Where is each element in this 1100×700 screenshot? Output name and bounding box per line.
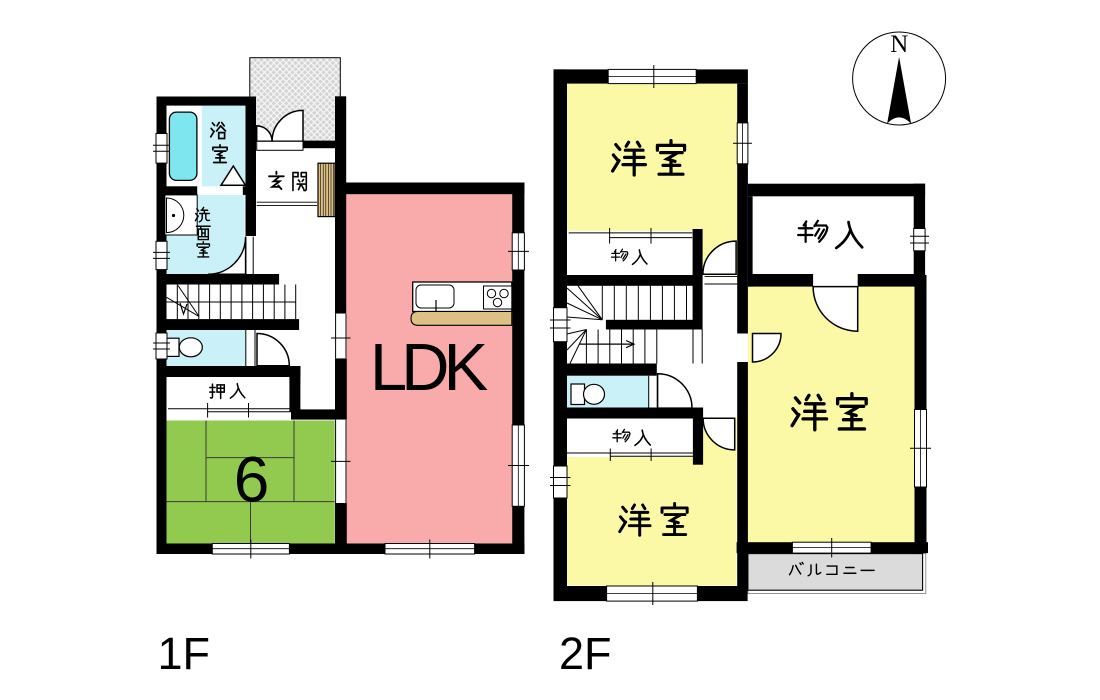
svg-text:1F: 1F bbox=[158, 628, 211, 679]
svg-text:N: N bbox=[890, 31, 908, 58]
svg-text:LDK: LDK bbox=[370, 330, 488, 405]
svg-text:2F: 2F bbox=[559, 628, 612, 679]
svg-text:6: 6 bbox=[234, 444, 270, 516]
